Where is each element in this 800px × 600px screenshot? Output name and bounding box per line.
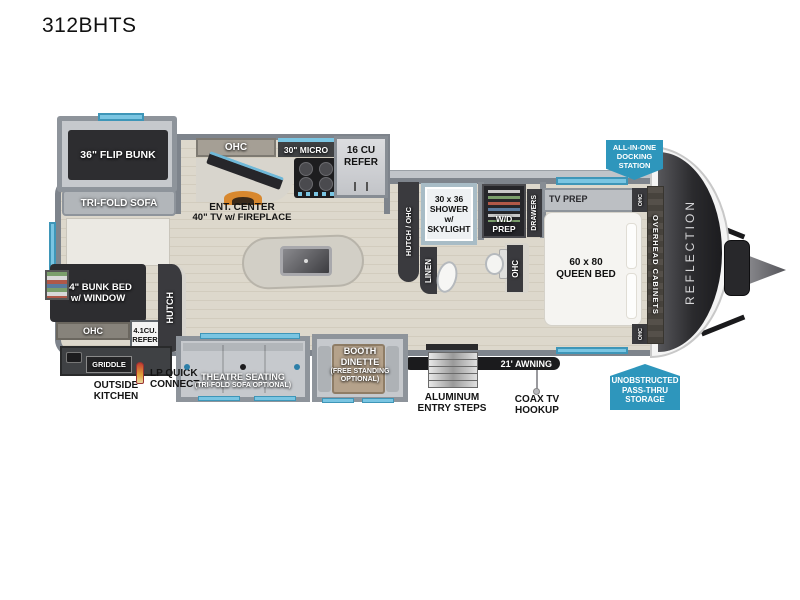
entry-steps [426,344,478,388]
pillow [626,223,637,269]
model-title: 312BHTS [42,14,137,38]
washer-dryer-prep: W/D PREP [482,184,526,238]
window-dinette-outer [362,398,394,403]
burner [319,162,333,176]
refrigerator-handle [354,182,368,191]
queen-bed-label: 60 x 80 QUEEN BED [545,213,627,325]
sofa-bed-area [66,218,170,266]
window-bedroom-bottom [556,347,628,354]
drawers-cabinet: DRAWERS [527,189,542,237]
window-dinette-outer [322,398,354,403]
step [428,380,478,388]
queen-bed: 60 x 80 QUEEN BED [544,212,642,326]
burner [319,177,333,191]
window-theatre-outer [198,396,240,401]
ent-center-label: ENT. CENTER 40" TV w/ FIREPLACE [184,202,300,223]
brand-label: REFLECTION [683,199,697,305]
theatre-seat-back [183,343,303,351]
shower: 30 x 36 SHOWER w/ SKYLIGHT [421,183,477,245]
hutch-ohc-cabinet: HUTCH / OHC [398,182,419,282]
tri-fold-sofa: TRI-FOLD SOFA [62,190,176,216]
booth-dinette-label: BOOTH DINETTE (FREE STANDING OPTIONAL) [314,346,406,384]
coax-cable [536,370,538,390]
window-bedroom-top [556,177,628,185]
burner [299,177,313,191]
kitchen-overhead-cabinet: OHC [196,138,276,157]
cupholder [294,364,300,370]
lp-flame-icon [136,362,144,384]
linen-closet: LINEN [420,247,437,294]
bunk-overhead-cabinet: OHC [56,322,130,340]
pillow [626,273,637,319]
window-theatre-outer [254,396,296,401]
coax-label: COAX TV HOOKUP [508,394,566,416]
bath-overhead-cabinet: OHC [507,245,523,292]
pass-thru-storage-badge: UNOBSTRUCTED PASS-THRU STORAGE [610,364,680,410]
propane-cover [724,240,750,296]
entry-steps-label: ALUMINUM ENTRY STEPS [414,392,490,414]
cooktop [294,158,338,198]
griddle: GRIDDLE [86,356,132,373]
outside-kitchen-sink [66,352,82,363]
overhead-cabinets: OVERHEAD CABINETS [647,186,664,344]
theatre-seating-label: THEATRE SEATING (TRI-FOLD SOFA OPTIONAL) [180,372,306,390]
step-rail [426,344,478,350]
window-flip-bunk [98,113,144,121]
refrigerator-16cu: 16 CU REFER [334,136,388,198]
cupholder [184,364,190,370]
microwave: 30" MICRO [278,138,334,157]
kitchen-sink [280,246,332,276]
bunk-shelf [45,270,69,300]
stove-knobs [298,192,334,196]
cupholder [240,364,246,370]
toilet [485,253,504,275]
front-cap: REFLECTION [658,152,722,352]
flip-bunk: 36" FLIP BUNK [68,130,168,180]
tv-prep-label: TV PREP [549,194,609,204]
hitch-coupler [746,250,786,290]
floorplan-canvas: 312BHTS REFLECTION 36" FLIP BUNK TRI-FOL… [0,0,800,600]
window-theatre [200,333,300,339]
burner [299,162,313,176]
